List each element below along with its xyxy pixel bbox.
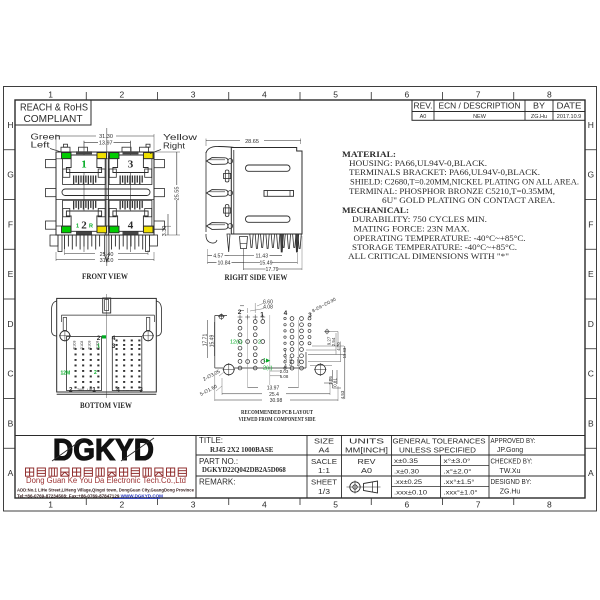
svg-text:JP.Gong: JP.Gong	[497, 447, 523, 454]
svg-text:7: 7	[476, 500, 481, 510]
svg-text:2: 2	[120, 500, 125, 510]
svg-text:.x°±2.0°: .x°±2.0°	[444, 467, 472, 475]
svg-text:1: 1	[92, 387, 96, 394]
svg-text:R: R	[89, 224, 93, 230]
svg-text:SHEET: SHEET	[311, 478, 337, 487]
svg-text:TERMINALS BRACKET: PA66,UL94V-: TERMINALS BRACKET: PA66,UL94V-0,BLACK.	[349, 168, 540, 177]
svg-text:H: H	[588, 120, 594, 130]
svg-text:4.57: 4.57	[213, 253, 223, 259]
svg-text:A: A	[588, 468, 594, 478]
svg-text:5: 5	[333, 500, 338, 510]
svg-text:4: 4	[112, 335, 116, 342]
svg-text:B: B	[8, 418, 14, 428]
svg-text:Left: Left	[31, 141, 51, 150]
svg-text:15.49: 15.49	[209, 335, 215, 348]
svg-text:D: D	[588, 319, 594, 329]
svg-text:DESIGND BY:: DESIGND BY:	[491, 477, 532, 486]
svg-text:4.70: 4.70	[336, 342, 341, 351]
svg-text:SACLE: SACLE	[311, 457, 337, 466]
svg-text:CHECKED BY:: CHECKED BY:	[491, 457, 533, 466]
svg-text:DATE: DATE	[557, 102, 582, 111]
svg-text:6U" GOLD PLATING ON CONTACT AR: 6U" GOLD PLATING ON CONTACT AREA.	[382, 196, 555, 205]
svg-text:APPROVED BY:: APPROVED BY:	[491, 436, 536, 445]
svg-text:BOTTOM VIEW: BOTTOM VIEW	[80, 400, 132, 410]
svg-text:OPERATING TEMPERATURE: -40°C~+: OPERATING TEMPERATURE: -40°C~+85°C.	[354, 234, 526, 243]
svg-text:6.08: 6.08	[280, 374, 289, 379]
svg-text:17.71: 17.71	[202, 334, 208, 347]
svg-text:G: G	[587, 170, 594, 180]
svg-text:4: 4	[284, 310, 288, 317]
svg-text:1: 1	[81, 159, 87, 171]
svg-text:2: 2	[97, 335, 101, 342]
svg-text:3: 3	[112, 343, 116, 350]
svg-text:.x±0.30: .x±0.30	[394, 468, 419, 475]
svg-text:2: 2	[81, 220, 87, 232]
svg-text:31.30: 31.30	[99, 134, 113, 140]
svg-text:REV.: REV.	[414, 102, 433, 111]
svg-text:ZG.Hu: ZG.Hu	[500, 489, 521, 496]
svg-text:MECHANICAL:: MECHANICAL:	[342, 205, 409, 215]
svg-text:.xx±0.25: .xx±0.25	[394, 479, 422, 486]
svg-text:2.54: 2.54	[331, 337, 336, 346]
svg-text:3: 3	[128, 159, 134, 171]
svg-text:UNITS: UNITS	[349, 437, 384, 446]
svg-text:11.43: 11.43	[255, 253, 268, 259]
svg-text:TW.Xu: TW.Xu	[499, 468, 520, 475]
svg-text:Right: Right	[163, 142, 186, 151]
svg-text:11.43: 11.43	[342, 347, 347, 358]
svg-text:31.10: 31.10	[100, 258, 114, 264]
svg-text:TERMINAL: PHOSPHOR BRONZE C521: TERMINAL: PHOSPHOR BRONZE C5210,T=0.35MM…	[349, 187, 555, 196]
svg-text:A0: A0	[420, 114, 427, 120]
svg-text:SIZE: SIZE	[314, 437, 334, 446]
svg-text:G: G	[7, 170, 14, 180]
svg-text:RIGHT SIDE VIEW: RIGHT SIDE VIEW	[225, 272, 288, 282]
svg-text:30.98: 30.98	[270, 398, 283, 404]
svg-text:1: 1	[97, 344, 100, 350]
svg-text:12M: 12M	[61, 371, 71, 377]
svg-text:H: H	[7, 120, 13, 130]
svg-text:2: 2	[69, 387, 73, 394]
svg-text:4: 4	[262, 90, 267, 100]
svg-text:6: 6	[405, 500, 410, 510]
svg-text:12(x): 12(x)	[230, 340, 243, 346]
svg-text:5: 5	[333, 90, 338, 100]
svg-text:MATING FORCE: 23N MAX.: MATING FORCE: 23N MAX.	[354, 225, 470, 234]
svg-text:3: 3	[284, 357, 287, 363]
svg-text:0.81: 0.81	[333, 378, 338, 387]
svg-text:Tel:+86-0769-87234508; Fax:+8: Tel:+86-0769-87234508; Fax:+86-0769-8784…	[17, 493, 163, 498]
svg-text:D1C8: D1C8	[88, 341, 92, 350]
svg-text:B: B	[588, 418, 594, 428]
svg-text:4.53: 4.53	[340, 390, 345, 399]
svg-text:MM[INCH]: MM[INCH]	[345, 445, 388, 454]
svg-text:4: 4	[116, 387, 120, 394]
svg-text:F: F	[588, 219, 593, 229]
svg-text:3: 3	[139, 387, 143, 394]
svg-text:1/3: 1/3	[318, 487, 330, 496]
svg-text:A: A	[8, 468, 14, 478]
svg-text:RJ45 2X2 1000BASE: RJ45 2X2 1000BASE	[210, 446, 274, 454]
svg-text:25.55: 25.55	[175, 187, 181, 201]
svg-text:13.97: 13.97	[267, 386, 280, 392]
svg-text:x°±3.0°: x°±3.0°	[444, 457, 471, 465]
svg-text:4.08: 4.08	[263, 305, 273, 311]
svg-text:E: E	[8, 269, 14, 279]
svg-text:DURABILITY: 750 CYCLES MIN.: DURABILITY: 750 CYCLES MIN.	[352, 215, 487, 224]
svg-text:3.30: 3.30	[162, 226, 168, 237]
svg-text:8: 8	[547, 500, 552, 510]
svg-text:7: 7	[476, 90, 481, 100]
svg-text:C: C	[588, 369, 594, 379]
svg-text:6: 6	[405, 90, 410, 100]
svg-text:1: 1	[260, 311, 264, 318]
svg-text:D1C8: D1C8	[73, 341, 77, 350]
svg-text:28.65: 28.65	[245, 139, 259, 145]
svg-text:SHIELD: C2680,T=0.20MM,NICKEL: SHIELD: C2680,T=0.20MM,NICKEL PLATING ON…	[350, 178, 579, 187]
svg-text:2: 2	[120, 90, 125, 100]
svg-text:D1C8: D1C8	[80, 341, 84, 350]
svg-text:NEW: NEW	[473, 114, 487, 120]
svg-text:VIEWED FROM COMPONENT SIDE: VIEWED FROM COMPONENT SIDE	[239, 416, 316, 423]
svg-text:2: 2	[238, 309, 242, 316]
svg-text:ALL CRITICAL DIMENSIONS WITH ": ALL CRITICAL DIMENSIONS WITH "*"	[348, 252, 509, 261]
svg-text:TAB→UP: TAB→UP	[77, 388, 93, 392]
svg-text:3: 3	[191, 500, 196, 510]
svg-text:1: 1	[48, 500, 53, 510]
svg-text:BY: BY	[533, 102, 546, 111]
svg-text:E: E	[588, 269, 594, 279]
svg-text:3: 3	[308, 312, 312, 319]
svg-text:1: 1	[48, 90, 53, 100]
svg-text:D: D	[7, 319, 13, 329]
svg-text:2017.10.9: 2017.10.9	[557, 114, 581, 120]
svg-text:8: 8	[547, 90, 552, 100]
svg-text:ADD:No.1 LiHe Street,LiHeng Vi: ADD:No.1 LiHe Street,LiHeng Village,Qing…	[17, 487, 194, 492]
svg-text:HOUSING: PA66,UL94V-0,BLACK.: HOUSING: PA66,UL94V-0,BLACK.	[349, 159, 487, 168]
svg-text:STORAGE TEMPERATURE: -40°C~+85: STORAGE TEMPERATURE: -40°C~+85°C.	[352, 243, 517, 252]
svg-text:4: 4	[128, 220, 134, 232]
svg-text:MATERIAL:: MATERIAL:	[342, 149, 396, 159]
svg-text:1: 1	[76, 224, 79, 230]
svg-text:15.49: 15.49	[260, 260, 273, 266]
svg-text:ECN / DESCRIPTION: ECN / DESCRIPTION	[439, 102, 521, 111]
svg-text:25.4: 25.4	[269, 392, 279, 398]
svg-text:10.84: 10.84	[218, 260, 231, 266]
svg-text:A0: A0	[361, 466, 372, 475]
svg-text:2: 2	[258, 340, 261, 346]
svg-text:COMPLIANT: COMPLIANT	[24, 113, 84, 125]
svg-text:REACH & RoHS: REACH & RoHS	[20, 102, 88, 114]
svg-text:Dong Guan Ke You Da Electronic: Dong Guan Ke You Da Electronic Tech.Co.,…	[26, 476, 186, 485]
svg-text:D1D2: D1D2	[289, 357, 293, 366]
svg-text:A4: A4	[319, 445, 330, 454]
svg-text:FRONT VIEW: FRONT VIEW	[82, 271, 128, 281]
svg-text:ZG.Hu: ZG.Hu	[531, 114, 547, 120]
svg-text:x±0.35: x±0.35	[394, 458, 418, 465]
svg-text:PART NO.:: PART NO.:	[199, 457, 238, 466]
svg-text:TITLE:: TITLE:	[199, 436, 223, 445]
svg-text:4: 4	[262, 500, 267, 510]
svg-text:.xx°±1.5°: .xx°±1.5°	[444, 478, 475, 486]
svg-text:C: C	[7, 369, 13, 379]
svg-text:1:1: 1:1	[318, 466, 330, 475]
svg-text:REMARK:: REMARK:	[199, 478, 235, 487]
svg-text:3: 3	[191, 90, 196, 100]
svg-text:2: 2	[94, 370, 97, 376]
svg-text:REV: REV	[358, 457, 376, 466]
svg-text:2(x): 2(x)	[263, 366, 273, 372]
svg-text:DGKYD22Q042DB2A5D068: DGKYD22Q042DB2A5D068	[202, 467, 286, 474]
svg-text:.xxx°±1.0°: .xxx°±1.0°	[444, 488, 478, 496]
svg-text:13.97: 13.97	[99, 141, 113, 147]
svg-text:F: F	[8, 219, 13, 229]
svg-text:GENERAL TOLERANCES: GENERAL TOLERANCES	[393, 437, 486, 446]
svg-text:.xxx±0.10: .xxx±0.10	[394, 489, 427, 496]
svg-text:UNLESS SPECIFIED: UNLESS SPECIFIED	[399, 445, 476, 454]
svg-text:←—→: ←—→	[122, 388, 133, 392]
